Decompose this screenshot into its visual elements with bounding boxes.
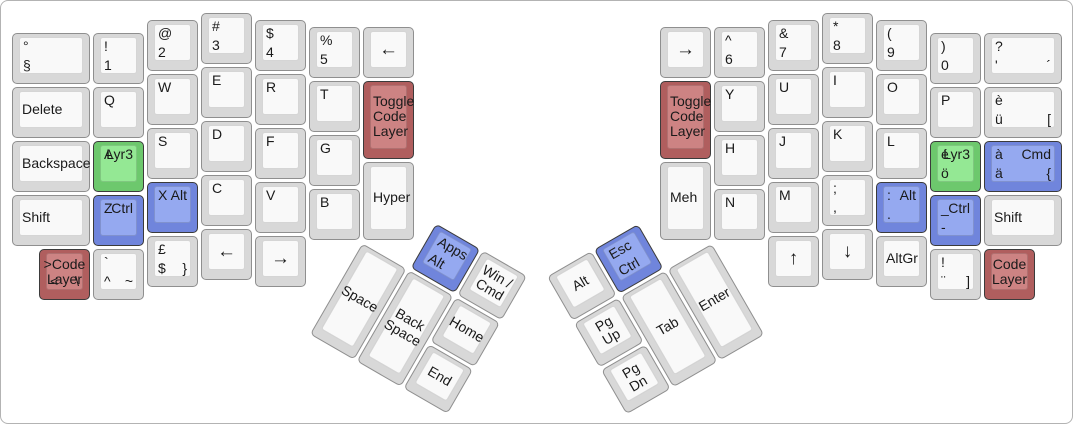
keycap-face: ↑ [775, 240, 812, 277]
keycap-face: °§ [19, 37, 83, 74]
key-legend-center: Hyper [371, 167, 406, 229]
key-legend-tr: Ctrl [111, 201, 133, 216]
key-legend-tl: * [833, 19, 838, 34]
key-b[interactable]: B [309, 189, 360, 240]
keycap-face: Backspace [19, 145, 83, 182]
keyboard-layout-canvas: °§!1@2#3$4%5←DeleteQWERTToggle Code Laye… [0, 0, 1073, 424]
key-legend-tl: U [779, 80, 789, 95]
keycap-face: àCmdä{ [991, 145, 1055, 182]
keycap-face: J [775, 132, 812, 169]
key-legend-tl: # [212, 19, 220, 34]
key-legend-tl: D [212, 127, 222, 142]
key-percent-5[interactable]: %5 [309, 27, 360, 78]
key-legend-arrow-icon: ← [209, 234, 244, 269]
key-hyper[interactable]: Hyper [363, 162, 414, 240]
keycap-face: B [316, 193, 353, 230]
key-excl-diaeresis[interactable]: !¨] [930, 249, 981, 300]
keycap-face: Pg Dn [609, 351, 660, 402]
keycap-face: &7 [775, 24, 812, 61]
key-legend-tl: J [779, 134, 786, 149]
key-legend-bl: . [887, 207, 891, 222]
key-legend-center: Alt [556, 259, 604, 307]
key-x-alt[interactable]: XAlt [147, 182, 198, 233]
key-legend-bl: 2 [158, 45, 166, 60]
key-i[interactable]: I [822, 67, 873, 118]
key-legend-center: Shift [20, 200, 82, 235]
keycap-face: Code Layer [991, 253, 1028, 290]
key-legend-tl: W [158, 80, 171, 95]
key-legend-br: ´ [1046, 58, 1051, 73]
keycap-face: ?'´ [991, 37, 1055, 74]
key-legend-tr: Lyr3 [106, 147, 133, 162]
key-legend-tl: @ [158, 26, 172, 41]
key-arrow-up[interactable]: ↑ [768, 236, 819, 287]
key-question-apostrophe[interactable]: ?'´ [984, 33, 1062, 84]
key-legend-tl: N [725, 195, 735, 210]
key-legend-tl: K [833, 127, 842, 142]
key-altgr[interactable]: AltGr [876, 236, 927, 287]
key-legend-tl: ( [887, 26, 892, 41]
key-legend-br: } [182, 261, 187, 276]
keycap-face: EscCtrl [602, 231, 653, 282]
keycap-face: ;, [829, 179, 866, 216]
key-l[interactable]: L [876, 128, 927, 179]
key-k[interactable]: K [822, 121, 873, 172]
key-legend-bl: 9 [887, 45, 895, 60]
key-legend-tl: è [995, 93, 1003, 108]
key-s[interactable]: S [147, 128, 198, 179]
key-a-lyr3[interactable]: ALyr3 [93, 141, 144, 192]
key-legend-tl: X [158, 188, 167, 203]
keycap-face: H [721, 139, 758, 176]
keycap-face: ALyr3 [100, 145, 137, 182]
key-lparen-9[interactable]: (9 [876, 20, 927, 71]
keycap-face: %5 [316, 31, 353, 68]
key-legend-bl: $ [158, 261, 166, 276]
key-u[interactable]: U [768, 74, 819, 125]
keycap-face: :Alt. [883, 186, 920, 223]
key-legend-center: Pg Up [583, 306, 631, 354]
key-legend-bl: ' [995, 58, 998, 73]
key-legend-tr: Lyr3 [943, 147, 970, 162]
key-hash-3[interactable]: #3 [201, 13, 252, 64]
key-delete[interactable]: Delete [12, 87, 90, 138]
key-legend-tl: L [887, 134, 895, 149]
key-f[interactable]: F [255, 128, 306, 179]
keycap-face: *8 [829, 17, 866, 54]
key-legend-tr: Alt [900, 188, 916, 203]
keycap-face: (9 [883, 24, 920, 61]
key-p[interactable]: P [930, 87, 981, 138]
key-legend-tl: H [725, 141, 735, 156]
key-legend-center: AltGr [884, 241, 919, 276]
keycap-face: T [316, 85, 353, 122]
keycap-face: O [883, 78, 920, 115]
key-legend-tl: ! [104, 39, 108, 54]
keycap-face: $4 [262, 24, 299, 61]
key-legend-tl: S [158, 134, 167, 149]
key-legend-bl: - [941, 220, 946, 235]
key-m[interactable]: M [768, 182, 819, 233]
key-legend-center: Code Layer [992, 254, 1027, 289]
key-z-ctrl[interactable]: ZCtrl [93, 195, 144, 246]
key-y[interactable]: Y [714, 81, 765, 132]
key-legend-bl: ¨ [941, 274, 946, 289]
keycap-face: I [829, 71, 866, 108]
keycap-face: Meh [667, 166, 704, 230]
key-legend-tl: ^ [725, 33, 732, 48]
key-legend-tl: Q [104, 93, 115, 108]
keycap-face: ← [208, 233, 245, 270]
keycap-face: G [316, 139, 353, 176]
keycap-face: ← [370, 31, 407, 68]
key-toggle-code-layer-left[interactable]: Toggle Code Layer [363, 81, 414, 159]
keycap-face: )0 [937, 37, 974, 74]
key-legend-center: Meh [668, 167, 703, 229]
key-n[interactable]: N [714, 189, 765, 240]
keycap-face: Home [441, 304, 492, 355]
keycap-face: Q [100, 91, 137, 128]
key-caret-6[interactable]: ^6 [714, 27, 765, 78]
keycap-face: D [208, 125, 245, 162]
keycap-face: P [937, 91, 974, 128]
keycap-face: → [262, 240, 299, 277]
key-legend-bl: § [23, 58, 31, 73]
key-arrow-left-bottom[interactable]: ← [201, 229, 252, 280]
key-legend-arrow-icon: → [668, 32, 703, 67]
key-e-grave-u-uml[interactable]: èü[ [984, 87, 1062, 138]
keycap-face: Win / Cmd [468, 257, 519, 308]
keycap-face: → [667, 31, 704, 68]
key-shift-right[interactable]: Shift [984, 195, 1062, 246]
key-legend-bl: ü [995, 112, 1003, 127]
keycap-face: £$} [154, 240, 191, 277]
key-legend-tl: % [320, 33, 332, 48]
key-legend-bl: 5 [320, 52, 328, 67]
key-c[interactable]: C [201, 175, 252, 226]
key-legend-center: >Code Layer [47, 254, 82, 289]
key-legend-br: ~ [125, 274, 133, 289]
key-deg-sect[interactable]: °§ [12, 33, 90, 84]
keycap-face: !1 [100, 37, 137, 74]
key-legend-tl: £ [158, 242, 166, 257]
key-legend-tl: G [320, 141, 331, 156]
key-legend-tl: ? [995, 39, 1003, 54]
key-backspace[interactable]: Backspace [12, 141, 90, 192]
key-legend-bl: 0 [941, 58, 949, 73]
keycap-face: ^6 [721, 31, 758, 68]
key-v[interactable]: V [255, 182, 306, 233]
keycap-face: Alt [555, 258, 606, 309]
key-legend-tl: B [320, 195, 329, 210]
key-legend-tl: : [887, 188, 891, 203]
key-legend-center: Delete [20, 92, 82, 127]
key-legend-tl: & [779, 26, 788, 41]
key-h[interactable]: H [714, 135, 765, 186]
key-arrow-left-top[interactable]: ← [363, 27, 414, 78]
keycap-face: Shift [19, 199, 83, 236]
keycap-face: Toggle Code Layer [370, 85, 407, 149]
key-amp-7[interactable]: &7 [768, 20, 819, 71]
key-legend-arrow-icon: ↓ [830, 234, 865, 269]
key-semicolon-comma[interactable]: ;, [822, 175, 873, 226]
key-legend-center: Shift [992, 200, 1054, 235]
key-legend-bl: 4 [266, 45, 274, 60]
key-gt-code-layer[interactable]: <\>Code Layer [39, 249, 90, 300]
key-legend-bl: Alt [426, 250, 448, 271]
key-legend-tl: ` [104, 255, 109, 270]
keycap-face: E [208, 71, 245, 108]
key-legend-tl: à [995, 147, 1003, 162]
key-w[interactable]: W [147, 74, 198, 125]
key-legend-tr: Ctrl [948, 201, 970, 216]
key-legend-bl: ^ [104, 274, 111, 289]
keycap-face: R [262, 78, 299, 115]
key-legend-center: Win / Cmd [470, 258, 518, 306]
key-legend-tl: I [833, 73, 837, 88]
keycap-face: AppsAlt [422, 230, 473, 281]
key-colon-period-alt[interactable]: :Alt. [876, 182, 927, 233]
key-legend-tl: E [212, 73, 221, 88]
key-legend-bl: 6 [725, 52, 733, 67]
key-r[interactable]: R [255, 74, 306, 125]
key-legend-tl: O [887, 80, 898, 95]
key-legend-tl: M [779, 188, 791, 203]
key-toggle-code-layer-right[interactable]: Toggle Code Layer [660, 81, 711, 159]
key-legend-center: Home [443, 305, 491, 353]
key-legend-bl: ä [995, 166, 1003, 181]
key-legend-arrow-icon: ↑ [776, 241, 811, 276]
key-legend-tl: ! [941, 255, 945, 270]
keycap-face: L [883, 132, 920, 169]
key-grave-caret-tilde[interactable]: `^~ [93, 249, 144, 300]
key-legend-bl: 1 [104, 58, 112, 73]
key-code-layer-right[interactable]: Code Layer [984, 249, 1035, 300]
key-j[interactable]: J [768, 128, 819, 179]
key-legend-tl: V [266, 188, 275, 203]
keycap-face: _Ctrl- [937, 199, 974, 236]
keycap-face: Y [721, 85, 758, 122]
key-legend-arrow-icon: ← [371, 32, 406, 67]
keycap-face: AltGr [883, 240, 920, 277]
key-legend-tr: Alt [171, 188, 187, 203]
key-legend-tl: C [212, 181, 222, 196]
key-e[interactable]: E [201, 67, 252, 118]
key-legend-tr: Cmd [1021, 147, 1051, 162]
key-asterisk-8[interactable]: *8 [822, 13, 873, 64]
key-legend-arrow-icon: → [263, 241, 298, 276]
keycap-face: V [262, 186, 299, 223]
keycap-face: U [775, 78, 812, 115]
key-o[interactable]: O [876, 74, 927, 125]
keycap-face: ZCtrl [100, 199, 137, 236]
key-d[interactable]: D [201, 121, 252, 172]
key-legend-bl: 8 [833, 38, 841, 53]
key-t[interactable]: T [309, 81, 360, 132]
keycap-face: <\>Code Layer [46, 253, 83, 290]
keycap-face: èü[ [991, 91, 1055, 128]
keycap-face: F [262, 132, 299, 169]
keycap-face: S [154, 132, 191, 169]
key-pound-dollar-brace[interactable]: £$} [147, 236, 198, 287]
key-legend-tl: T [320, 87, 329, 102]
key-legend-tl: ) [941, 39, 946, 54]
key-legend-br: ] [966, 274, 970, 289]
key-legend-center: End [416, 352, 464, 400]
key-legend-br: [ [1047, 112, 1051, 127]
keycap-face: W [154, 78, 191, 115]
keycap-face: éLyr3ö [937, 145, 974, 182]
key-a-grave-cmd[interactable]: àCmdä{ [984, 141, 1062, 192]
keycap-face: Pg Up [582, 304, 633, 355]
key-meh[interactable]: Meh [660, 162, 711, 240]
keycap-face: Shift [991, 199, 1055, 236]
key-e-acute-lyr3[interactable]: éLyr3ö [930, 141, 981, 192]
keycap-face: @2 [154, 24, 191, 61]
key-arrow-down[interactable]: ↓ [822, 229, 873, 280]
key-g[interactable]: G [309, 135, 360, 186]
key-dollar-4[interactable]: $4 [255, 20, 306, 71]
key-legend-center: Toggle Code Layer [371, 86, 406, 148]
key-legend-br: { [1046, 166, 1051, 181]
key-shift-left[interactable]: Shift [12, 195, 90, 246]
key-legend-center: Toggle Code Layer [668, 86, 703, 148]
key-legend-tl: ; [833, 181, 837, 196]
key-arrow-right-top[interactable]: → [660, 27, 711, 78]
key-rparen-0[interactable]: )0 [930, 33, 981, 84]
keycap-face: `^~ [100, 253, 137, 290]
key-legend-bl: 3 [212, 38, 220, 53]
key-legend-tl: R [266, 80, 276, 95]
key-legend-tl: ° [23, 39, 29, 54]
keycap-face: Toggle Code Layer [667, 85, 704, 149]
keycap-face: N [721, 193, 758, 230]
key-excl-1[interactable]: !1 [93, 33, 144, 84]
key-legend-bl: , [833, 200, 837, 215]
keycap-face: M [775, 186, 812, 223]
key-legend-tl: Y [725, 87, 734, 102]
keycap-face: #3 [208, 17, 245, 54]
key-legend-center: Backspace [20, 146, 82, 181]
keycap-face: Hyper [370, 166, 407, 230]
key-legend-tl: F [266, 134, 275, 149]
key-legend-bl: 7 [779, 45, 787, 60]
keycap-face: C [208, 179, 245, 216]
key-legend-bl: ö [941, 166, 949, 181]
key-arrow-right-bottom[interactable]: → [255, 236, 306, 287]
key-legend-center: Pg Dn [610, 352, 658, 400]
key-legend-tl: $ [266, 26, 274, 41]
key-legend-tl: P [941, 93, 950, 108]
keycap-face: ↓ [829, 233, 866, 270]
key-at-2[interactable]: @2 [147, 20, 198, 71]
keycap-face: !¨] [937, 253, 974, 290]
keycap-face: K [829, 125, 866, 162]
key-underscore-hyphen-ctrl[interactable]: _Ctrl- [930, 195, 981, 246]
keycap-face: Delete [19, 91, 83, 128]
keycap-face: XAlt [154, 186, 191, 223]
key-q[interactable]: Q [93, 87, 144, 138]
keycap-face: End [414, 351, 465, 402]
